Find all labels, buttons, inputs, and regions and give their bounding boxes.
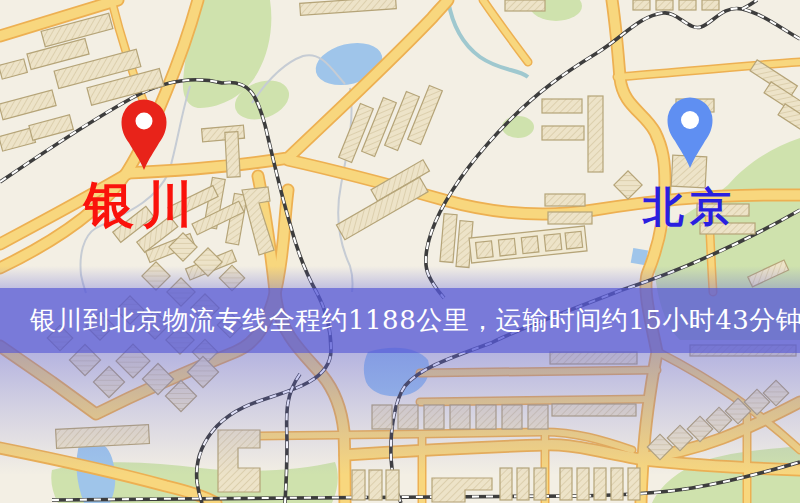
banner-top-fade — [0, 266, 800, 288]
banner-bottom-fade — [0, 353, 800, 475]
route-info-text: 银川到北京物流专线全程约1188公里，运输时间约15小时43分钟. — [0, 303, 800, 338]
origin-city-label: 银川 — [84, 172, 202, 239]
map-screenshot: 银川 北京 银川到北京物流专线全程约1188公里，运输时间约15小时43分钟. — [0, 0, 800, 503]
route-info-banner: 银川到北京物流专线全程约1188公里，运输时间约15小时43分钟. — [0, 288, 800, 353]
destination-city-label: 北京 — [643, 180, 737, 235]
